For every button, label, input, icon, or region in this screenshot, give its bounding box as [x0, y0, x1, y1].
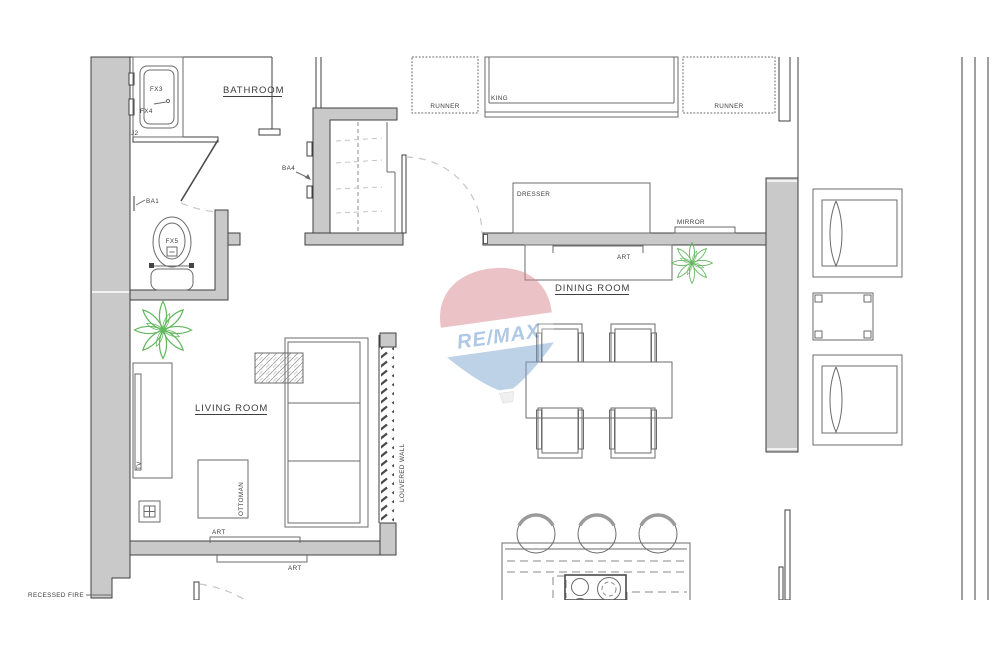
louvered-wall: LOUVERED WALL: [379, 335, 406, 523]
living-room: LIVING ROOM TV OTTOMAN: [133, 335, 406, 543]
kitchen-island: [502, 515, 690, 616]
king-bed: KING: [485, 57, 678, 117]
living-room-label: LIVING ROOM: [195, 403, 268, 414]
art-living-label: ART: [212, 529, 226, 536]
ba1-callout: BA1: [134, 196, 159, 211]
armchair-top: [813, 189, 902, 277]
dining-room: ART DINING ROOM: [525, 243, 712, 458]
fx4-label: FX4: [140, 108, 153, 115]
hall: ART RECESSED FIRE: [28, 555, 307, 600]
plant-icon: [135, 302, 192, 359]
toilet: FX5: [149, 217, 194, 290]
louver-slats: [381, 347, 394, 523]
vanity-sink: FX3 FX4 J2: [131, 57, 183, 137]
tv-console: TV: [133, 363, 172, 478]
recessed-fire-label: RECESSED FIRE: [28, 592, 84, 599]
art-dining: ART: [553, 246, 643, 261]
ba4-callout: BA4: [282, 165, 311, 180]
cooktop: [565, 575, 626, 616]
closet: BA4: [282, 122, 482, 233]
bathroom: BATHROOM FX3 FX4 J2 BA1: [131, 57, 284, 359]
console-table: [525, 245, 672, 280]
bathroom-label: BATHROOM: [223, 85, 284, 96]
fx5-label: FX5: [166, 238, 179, 245]
side-table-right: [813, 293, 873, 340]
dining-table: [526, 362, 672, 418]
coffee-table: [255, 353, 303, 383]
floor-plan-drawing: BATHROOM FX3 FX4 J2 BA1: [0, 0, 1000, 667]
slider-panel: [785, 510, 790, 600]
runner-right-label: RUNNER: [714, 103, 743, 110]
bathroom-door: [181, 140, 228, 212]
dresser-label: DRESSER: [517, 191, 550, 198]
tv-label: TV: [136, 461, 143, 470]
bedroom: RUNNER KING RUNNER DRESSER MIRROR: [412, 57, 775, 233]
fx3-label: FX3: [150, 86, 163, 93]
sitting-area: [813, 189, 902, 445]
hall-door: [194, 582, 245, 600]
louvered-wall-label: LOUVERED WALL: [399, 443, 406, 502]
art-dining-label: ART: [617, 254, 631, 261]
armchair-bottom: [813, 355, 902, 445]
art-hall: ART: [217, 555, 307, 572]
mirror-label: MIRROR: [677, 219, 705, 226]
slider-panel: [779, 567, 783, 600]
dining-room-label: DINING ROOM: [555, 283, 630, 294]
j2-label: J2: [131, 130, 139, 137]
bedroom-door: [402, 155, 482, 233]
mirror: MIRROR: [675, 219, 735, 233]
floor-plan-canvas: BATHROOM FX3 FX4 J2 BA1: [0, 0, 1000, 667]
art-hall-label: ART: [288, 565, 302, 572]
side-table: [139, 501, 160, 522]
bar-stools: [517, 515, 677, 553]
balloon-basket: [500, 391, 515, 403]
ottoman: OTTOMAN: [198, 460, 248, 518]
ottoman-label: OTTOMAN: [238, 482, 245, 516]
runner-left-label: RUNNER: [430, 103, 459, 110]
plant-icon: [672, 243, 713, 284]
dresser: DRESSER: [513, 183, 650, 233]
ba4-label: BA4: [282, 165, 295, 172]
king-label: KING: [491, 95, 508, 102]
ba1-label: BA1: [146, 198, 159, 205]
